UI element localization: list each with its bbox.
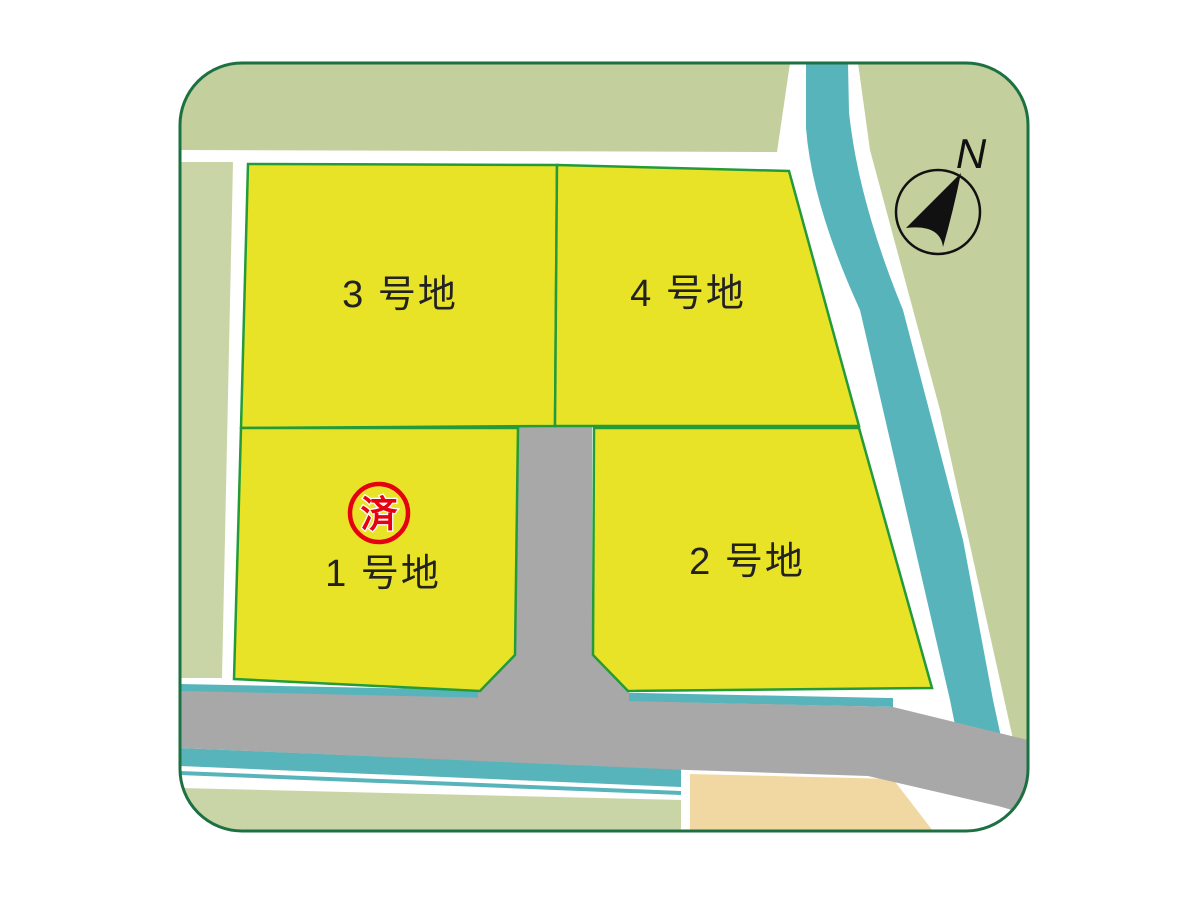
lot-3-label: 3 号地 [342, 274, 458, 316]
compass-north-label: N [956, 130, 987, 177]
north-field [180, 63, 790, 152]
lot-2-label: 2 号地 [689, 541, 805, 583]
lot-1-label: 1 号地 [325, 553, 441, 595]
lot-map-page: 3 号地 4 号地 1 号地 2 号地 済 N [0, 0, 1200, 900]
lot-4-label: 4 号地 [630, 273, 746, 315]
site-plan-map: 3 号地 4 号地 1 号地 2 号地 済 N [0, 0, 1200, 900]
sold-badge-text: 済 [361, 494, 399, 535]
map-content: 3 号地 4 号地 1 号地 2 号地 済 [180, 63, 1040, 831]
